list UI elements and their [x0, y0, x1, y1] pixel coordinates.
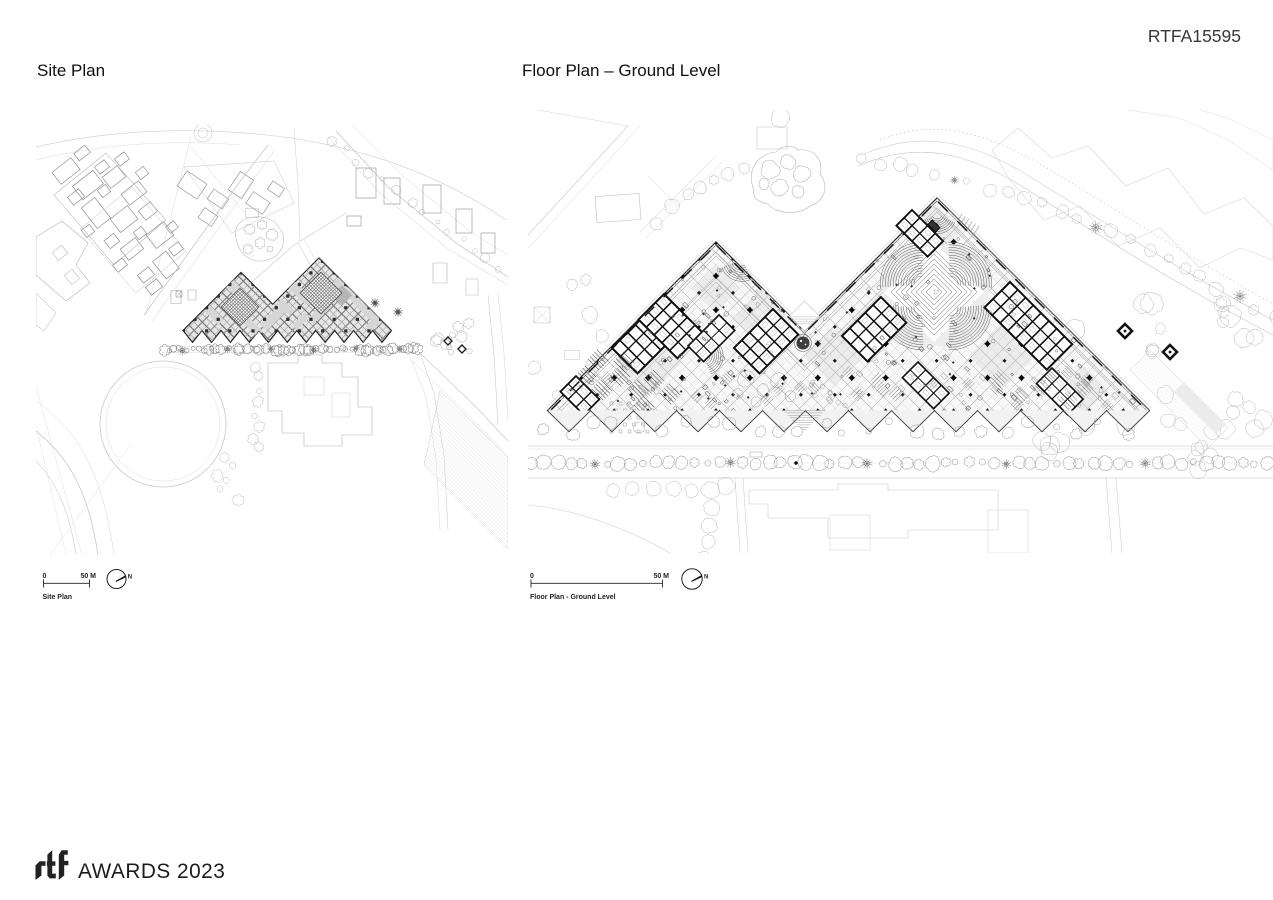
svg-text:0: 0 [530, 573, 534, 580]
svg-text:Floor Plan - Ground Level: Floor Plan - Ground Level [530, 594, 616, 601]
svg-text:AWARDS 2023: AWARDS 2023 [78, 860, 225, 883]
svg-text:N: N [128, 575, 132, 581]
svg-text:50 M: 50 M [80, 573, 96, 580]
svg-text:Site Plan: Site Plan [43, 594, 73, 601]
svg-text:50 M: 50 M [653, 573, 669, 580]
svg-text:N: N [704, 575, 708, 581]
svg-text:0: 0 [43, 573, 47, 580]
